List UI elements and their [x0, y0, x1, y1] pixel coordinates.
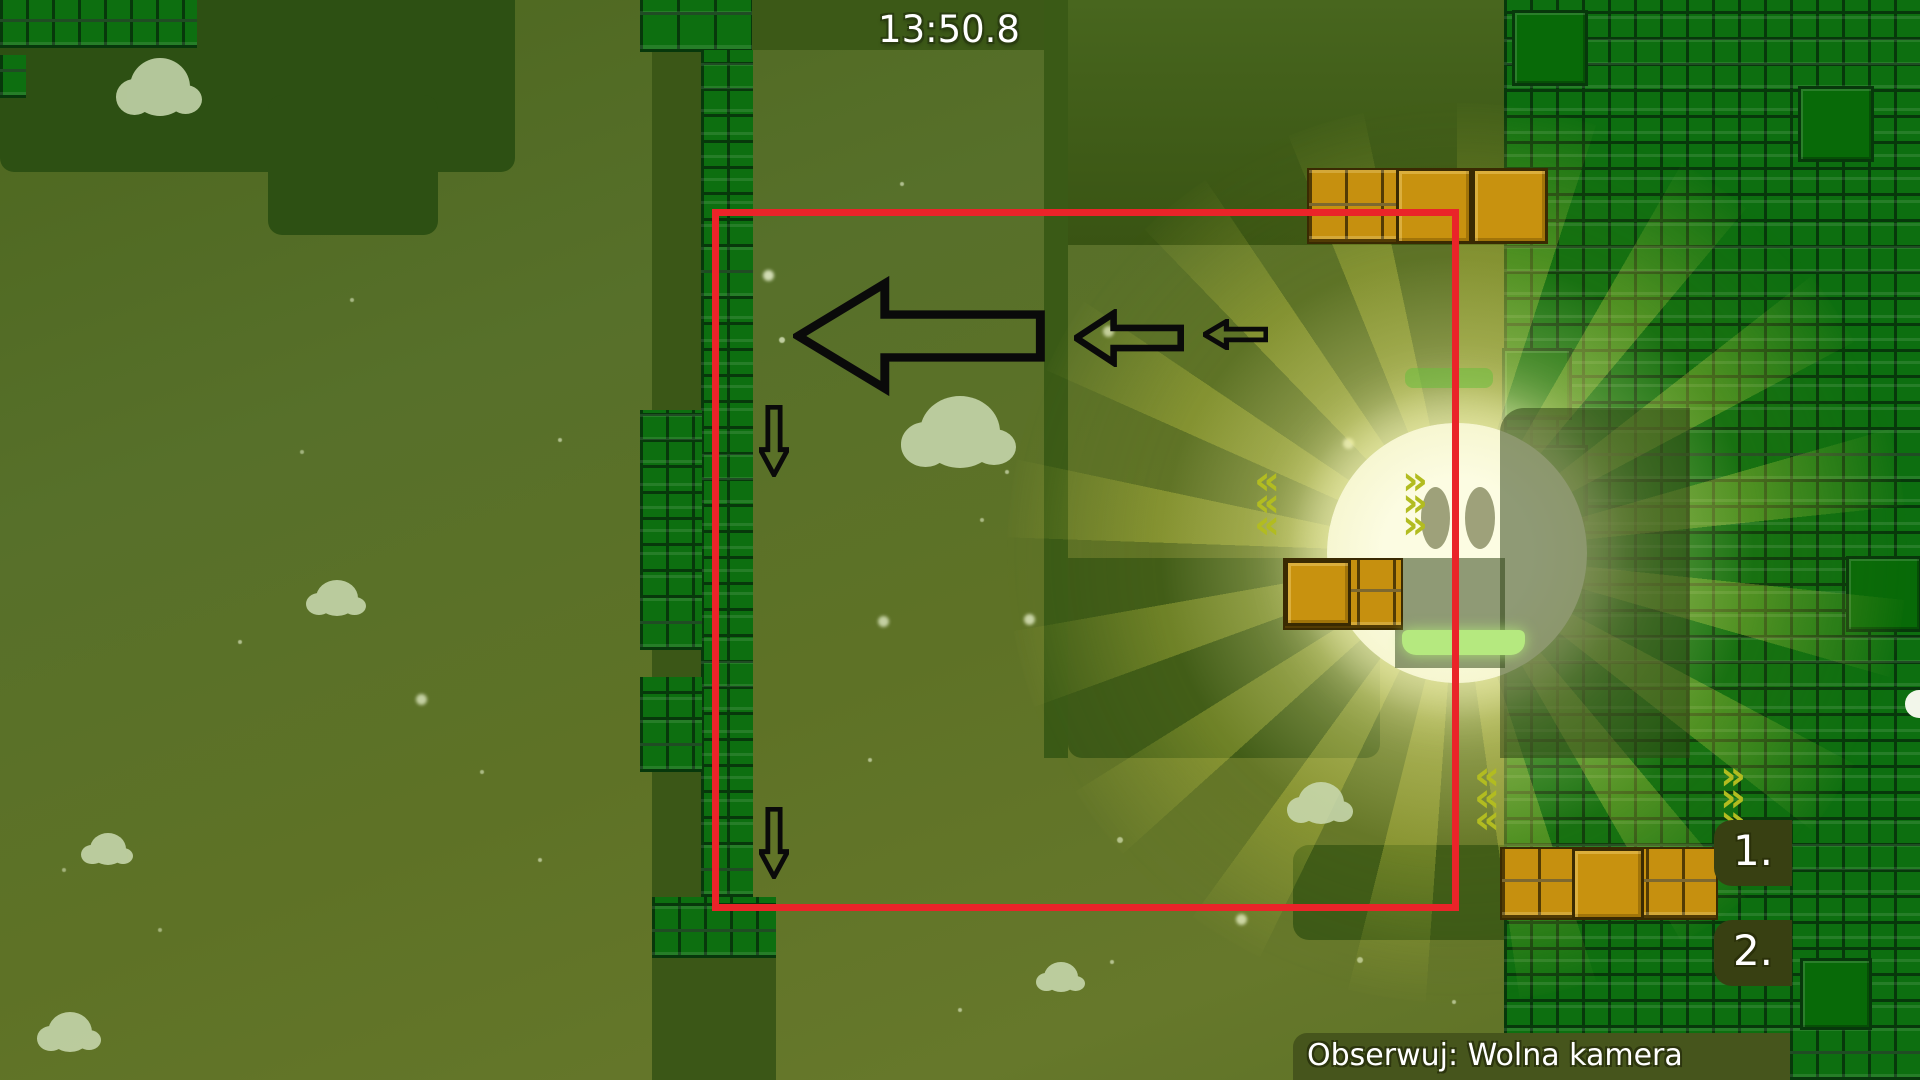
gold-block-large	[1572, 848, 1644, 920]
chevron-left-group-bottom: « « «	[1470, 765, 1504, 831]
rank-badge-2: 2.	[1714, 920, 1792, 986]
block-column-cap	[640, 0, 752, 52]
down-arrow-lower-icon	[759, 807, 789, 879]
terrain-shadow-over-sun-right	[1500, 408, 1690, 758]
block-large	[1800, 958, 1872, 1030]
spectate-label: Obserwuj: Wolna kamera	[1293, 1033, 1790, 1079]
game-viewport[interactable]: « « « » » » « « « » » » 13:50.8	[0, 0, 1920, 1080]
gold-block-large	[1472, 168, 1548, 244]
rank-badge-2-label: 2.	[1733, 926, 1773, 975]
block-single-left-edge	[0, 55, 26, 98]
block-column-bulge-lower	[640, 677, 702, 772]
small-left-arrow-icon	[1203, 319, 1268, 350]
block-large	[1798, 86, 1874, 162]
medium-left-arrow-icon	[1074, 309, 1184, 367]
cloud	[48, 1012, 92, 1052]
rank-badge-1: 1.	[1714, 820, 1792, 886]
cloud	[130, 58, 190, 116]
cloud	[316, 580, 358, 616]
block-column-bulge-upper	[640, 410, 702, 650]
terrain-dark-column-foot	[652, 943, 776, 1080]
terrain-dark-top-left-tongue	[268, 95, 438, 235]
block-large	[1512, 10, 1588, 86]
match-timer: 13:50.8	[824, 8, 1074, 51]
chevron-left-icon: «	[1470, 809, 1504, 831]
cloud	[1044, 962, 1078, 992]
down-arrow-upper-icon	[759, 405, 789, 477]
block-terrain-top-left-row	[0, 0, 197, 48]
spectate-bar: Obserwuj: Wolna kamera	[1293, 1033, 1790, 1080]
large-left-arrow-icon	[793, 274, 1048, 398]
sun-right-eye-icon	[1465, 487, 1495, 549]
cloud	[90, 833, 126, 865]
rank-badge-1-label: 1.	[1733, 826, 1773, 875]
